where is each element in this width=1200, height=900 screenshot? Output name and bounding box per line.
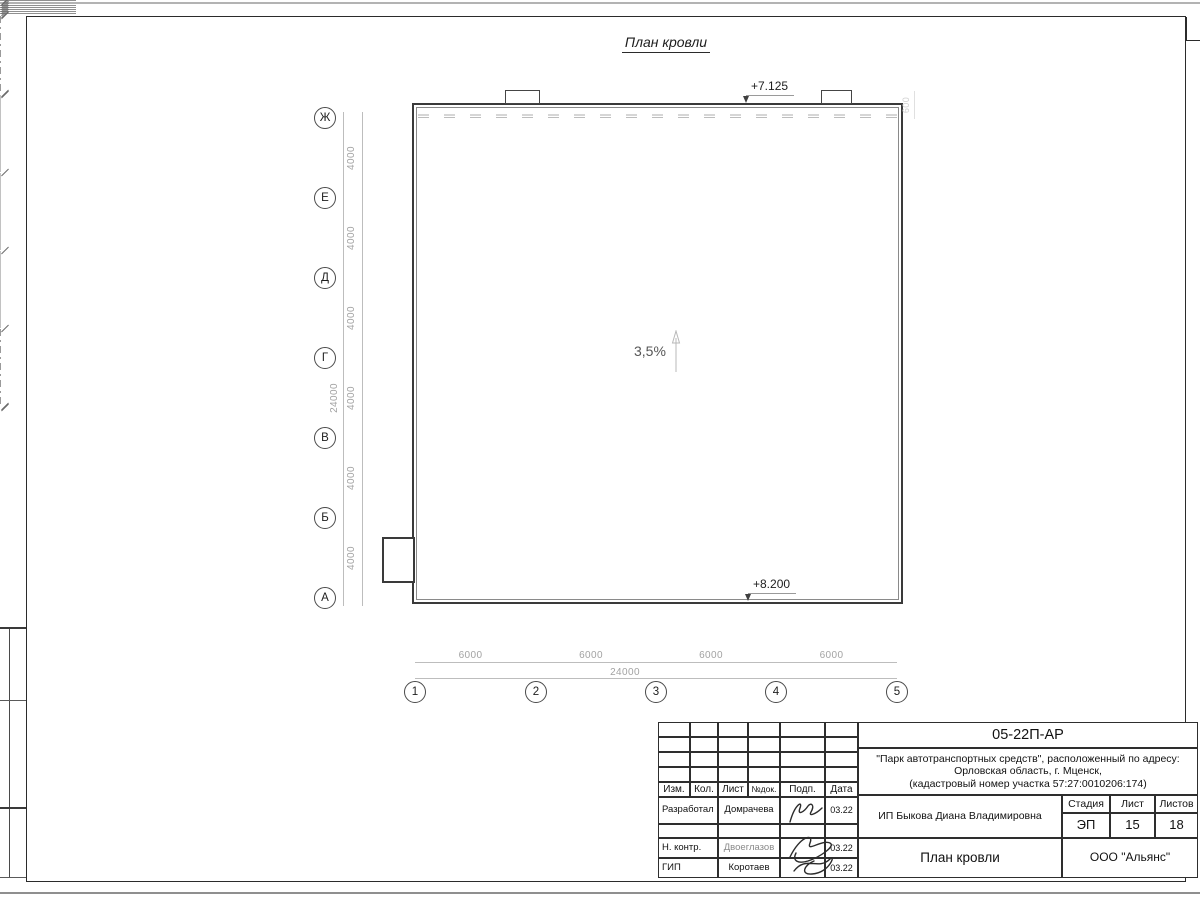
- grid-line-row-В: [0, 9, 76, 10]
- dim-label-vertical-0: 4000: [345, 138, 357, 178]
- tb-revision-cell: [718, 737, 748, 752]
- dim-label-horizontal-1: 6000: [571, 649, 611, 661]
- tb-revision-cell: [690, 737, 718, 752]
- parapet-dim-label: 600: [900, 85, 912, 125]
- dim-label-vertical-4: 4000: [345, 458, 357, 498]
- dim-line-vertical-total: [343, 112, 344, 606]
- drawing-sheet: План кровли +7.125 +8.200 3,5% 600 24000…: [0, 0, 1200, 900]
- side-stamp-vline: [9, 627, 10, 877]
- dim-label-vertical-5: 4000: [345, 538, 357, 578]
- tb-revision-cell: [690, 752, 718, 767]
- dim-label-horizontal-total: 24000: [600, 666, 650, 678]
- tb-revision-cell: [748, 767, 780, 782]
- tb-revision-cell: [718, 767, 748, 782]
- slope-arrow-icon: [669, 330, 683, 374]
- grid-line-col-4: [0, 251, 1, 328]
- dim-tick: [1, 247, 9, 255]
- dim-line-horizontal-segments: [415, 662, 897, 663]
- grid-line-row-А: [0, 13, 76, 14]
- tb-revision-cell: [825, 737, 858, 752]
- side-stamp-hline: [0, 700, 26, 701]
- tb-revision-cell: [748, 737, 780, 752]
- tb-revision-cell: [658, 752, 690, 767]
- tb-doc-code: 05-22П-АР: [858, 722, 1198, 748]
- grid-line-col-3: [0, 173, 1, 250]
- tb-project-line3: (кадастровый номер участка 57:27:0010206…: [909, 778, 1146, 790]
- corner-box: [1186, 17, 1200, 41]
- grid-line-col-5: [0, 329, 1, 406]
- tb-role-gip: ГИП: [658, 858, 718, 878]
- page-title: План кровли: [618, 34, 714, 53]
- tb-stage-label: Стадия: [1062, 795, 1110, 813]
- elevation-bottom-arrow-icon: [745, 594, 751, 601]
- tb-revision-cell: [780, 722, 825, 737]
- elevation-top-arrow-icon: [743, 96, 749, 103]
- tb-project-line1: "Парк автотранспортных средств", располо…: [876, 753, 1179, 765]
- paper-bottom-edge: [0, 892, 1200, 894]
- elevation-top: +7.125: [751, 79, 788, 93]
- tb-header-col-1: Кол.: [690, 782, 718, 797]
- axis-zh-dash-line: [418, 117, 898, 118]
- tb-revision-cell: [780, 767, 825, 782]
- axis-circle-col-2: 2: [525, 681, 547, 703]
- tb-revision-cell: [658, 722, 690, 737]
- tb-revision-cell: [780, 752, 825, 767]
- dim-label-vertical-total: 24000: [328, 373, 340, 423]
- axis-circle-col-4: 4: [765, 681, 787, 703]
- signature-scribble: [784, 831, 842, 878]
- grid-line-row-Д: [0, 5, 76, 6]
- tb-role-developed: Разработал: [658, 797, 718, 824]
- tb-header-col-3: №док.: [748, 782, 780, 797]
- tb-revision-cell: [658, 767, 690, 782]
- tb-sheets-label: Листов: [1155, 795, 1198, 813]
- parapet-dashed-line: [418, 114, 898, 116]
- tb-date-developed: 03.22: [825, 797, 858, 824]
- dim-label-horizontal-2: 6000: [691, 649, 731, 661]
- dim-label-horizontal-0: 6000: [451, 649, 491, 661]
- tb-revision-cell: [780, 737, 825, 752]
- tb-empty-row-cell: [658, 824, 718, 838]
- tb-name-developed: Домрачева: [718, 797, 780, 824]
- slope-label: 3,5%: [634, 343, 666, 359]
- tb-sheets-value: 18: [1155, 813, 1198, 838]
- grid-line-col-2: [0, 95, 1, 172]
- axis-circle-row-Г: Г: [314, 347, 336, 369]
- tb-sheet-label: Лист: [1110, 795, 1155, 813]
- dim-label-horizontal-3: 6000: [812, 649, 852, 661]
- roof-hatch: [505, 90, 540, 104]
- elevation-top-leader: [746, 95, 794, 96]
- tb-revision-cell: [718, 722, 748, 737]
- tb-organization: ООО "Альянс": [1062, 838, 1198, 878]
- tb-revision-cell: [690, 767, 718, 782]
- axis-circle-row-А: А: [314, 587, 336, 609]
- tb-revision-cell: [825, 722, 858, 737]
- tb-header-col-4: Подп.: [780, 782, 825, 797]
- tb-sheet-title: План кровли: [858, 838, 1062, 878]
- axis-circle-row-Ж: Ж: [314, 107, 336, 129]
- tb-revision-cell: [748, 752, 780, 767]
- tb-revision-cell: [718, 752, 748, 767]
- tb-name-gip: Коротаев: [718, 858, 780, 878]
- tb-revision-cell: [825, 767, 858, 782]
- parapet-dim-line: [914, 91, 915, 119]
- axis-circle-col-3: 3: [645, 681, 667, 703]
- tb-revision-cell: [825, 752, 858, 767]
- tb-header-col-2: Лист: [718, 782, 748, 797]
- tb-stage-value: ЭП: [1062, 813, 1110, 838]
- tb-header-col-5: Дата: [825, 782, 858, 797]
- tb-role-ncontrol: Н. контр.: [658, 838, 718, 858]
- tb-client: ИП Быкова Диана Владимировна: [858, 795, 1062, 838]
- tb-revision-cell: [690, 722, 718, 737]
- dim-tick: [1, 169, 9, 177]
- grid-line-row-Г: [0, 7, 76, 8]
- dim-label-vertical-1: 4000: [345, 218, 357, 258]
- elevation-bottom-leader: [748, 593, 796, 594]
- grid-line-row-Ж: [0, 0, 76, 1]
- axis-circle-row-Е: Е: [314, 187, 336, 209]
- dim-label-vertical-3: 4000: [345, 378, 357, 418]
- tb-sheet-value: 15: [1110, 813, 1155, 838]
- grid-line-row-Б: [0, 11, 76, 12]
- page-title-text: План кровли: [622, 34, 710, 53]
- tb-empty-row-cell: [718, 824, 780, 838]
- axis-circle-row-В: В: [314, 427, 336, 449]
- signature-scribble: [786, 798, 828, 830]
- dim-tick: [1, 325, 9, 333]
- tb-header-col-0: Изм.: [658, 782, 690, 797]
- axis-circle-col-5: 5: [886, 681, 908, 703]
- dim-line-vertical-segments: [362, 112, 363, 606]
- tb-revision-cell: [658, 737, 690, 752]
- roof-hatch: [821, 90, 852, 104]
- axis-circle-col-1: 1: [404, 681, 426, 703]
- side-stamp-hline: [0, 807, 26, 809]
- dim-line-horizontal-total: [415, 678, 897, 679]
- canopy-protrusion: [382, 537, 415, 583]
- elevation-bottom: +8.200: [753, 577, 790, 591]
- dim-label-vertical-2: 4000: [345, 298, 357, 338]
- tb-project-line2: Орловская область, г. Мценск,: [954, 765, 1102, 777]
- side-stamp-hline: [0, 877, 26, 878]
- paper-top-edge: [0, 2, 1200, 4]
- axis-circle-row-Д: Д: [314, 267, 336, 289]
- tb-revision-cell: [748, 722, 780, 737]
- tb-name-ncontrol: Двоеглазов: [718, 838, 780, 858]
- axis-circle-row-Б: Б: [314, 507, 336, 529]
- side-stamp-hline: [0, 627, 26, 629]
- grid-line-col-1: [0, 16, 1, 93]
- tb-project-description: "Парк автотранспортных средств", располо…: [858, 748, 1198, 795]
